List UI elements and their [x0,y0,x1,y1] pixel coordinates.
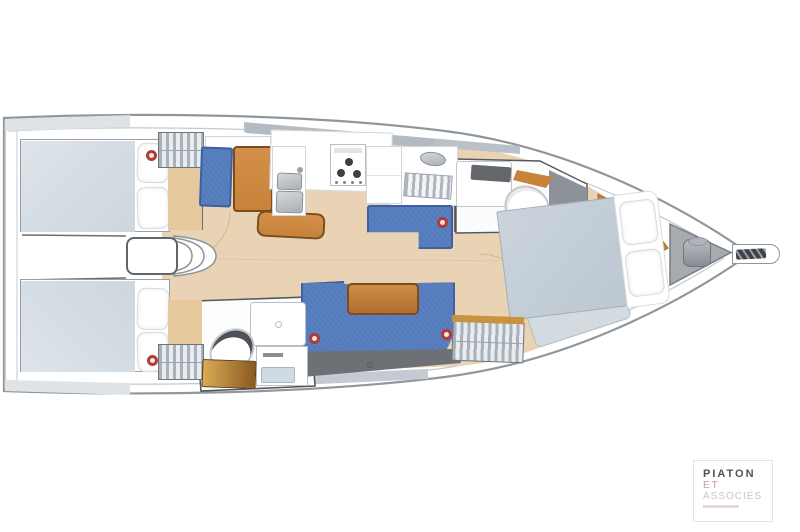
pillow [624,248,665,298]
stove-label [334,148,362,153]
wardrobe-rail [453,341,523,344]
nav-instrument [471,165,512,183]
windlass [683,239,711,267]
burner [337,169,345,177]
salon-table [347,283,419,315]
duvet [21,281,135,372]
side-seat [199,146,233,207]
nav-desk [456,161,512,207]
stove-knob [359,181,362,184]
wardrobe [158,132,204,168]
pillow [618,198,659,246]
logo-line1: PIATON [703,468,772,480]
button-cushion [437,217,448,228]
shower-drain [275,321,282,328]
faucet [297,167,303,173]
vanity-sink [261,367,295,383]
sink-basin [276,191,304,214]
stove-knob [343,181,346,184]
galley-fridge [366,146,402,204]
sink-basin [277,173,303,191]
duvet [496,197,629,321]
fridge-seam [367,175,401,176]
stove-knob [351,181,354,184]
pillow [136,287,169,330]
forward-hanging-locker [451,321,524,363]
cockpit-line [22,235,126,236]
windlass-drum [688,237,708,246]
yacht-floor-plan: PIATON ET ASSOCIÉS [0,0,800,532]
aft-head-shower [250,302,306,346]
wardrobe-rail [159,362,203,363]
logo-line3: ASSOCIÉS [703,491,772,502]
button-cushion [441,329,452,340]
galley-stove [330,144,366,186]
logo-box: PIATON ET ASSOCIÉS [693,460,773,522]
vanity-slot [263,353,283,357]
anchor-roller [736,248,766,260]
duvet [21,141,135,232]
wardrobe [158,344,204,380]
door-button [146,150,157,161]
burner [353,170,361,178]
chart-table [233,146,273,212]
wardrobe-rail [159,150,203,151]
aft-head-cabinet [202,359,257,389]
cabin-wood-floor [168,162,202,230]
logo-tagline [703,505,739,508]
bowsprit [732,244,780,264]
stove-knob [335,181,338,184]
forward-cabin-bed [496,190,671,323]
logo-line2: ET [703,480,772,491]
galley-sink-unit [272,146,306,216]
companionway-platform [126,237,178,275]
door-button [147,355,158,366]
galley-dishrack [403,172,453,199]
burner [345,158,353,166]
button-cushion [309,333,320,344]
trim-fitting [367,362,373,368]
aft-head-vanity [256,346,308,386]
pillow [136,186,169,229]
plan-base-layer [0,0,800,532]
